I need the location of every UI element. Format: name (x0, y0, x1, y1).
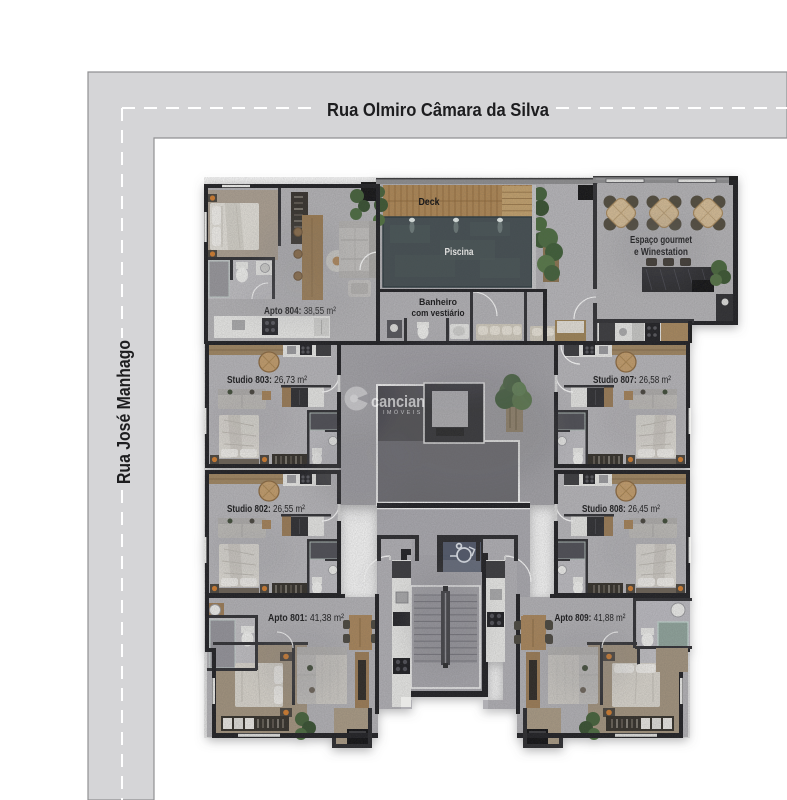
svg-text:Rua José Manhago: Rua José Manhago (114, 340, 134, 484)
svg-text:IMÓVEIS: IMÓVEIS (383, 409, 423, 416)
svg-text:Rua Olmiro Câmara da Silva: Rua Olmiro Câmara da Silva (327, 100, 550, 120)
svg-text:cancian: cancian (371, 392, 425, 411)
